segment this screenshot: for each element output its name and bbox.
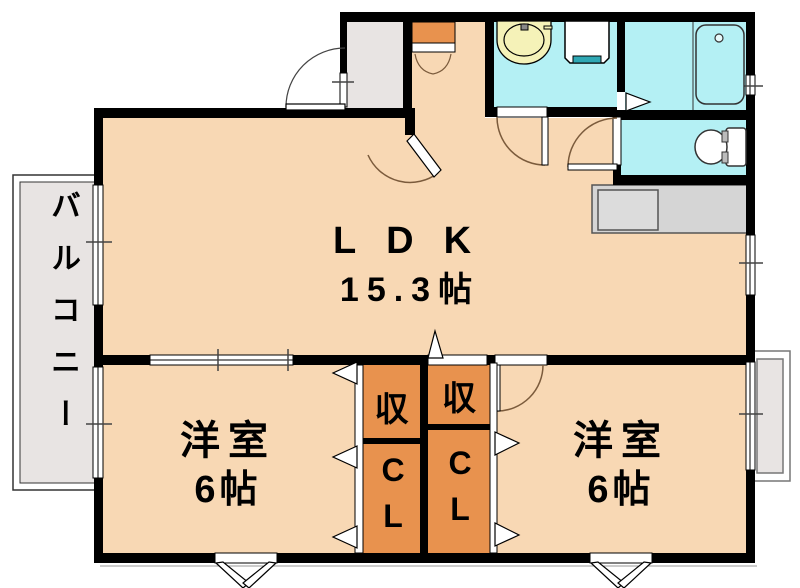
bedroom-right-area: 6帖 bbox=[541, 458, 701, 513]
closet-left-label: CL bbox=[374, 452, 411, 544]
bay-window-right bbox=[590, 553, 652, 588]
bathtub-icon bbox=[693, 22, 744, 110]
storage-right-label: 収 bbox=[428, 371, 490, 420]
floorplan-page: LDK 15.3帖 洋室 6帖 洋室 6帖 収 収 CL CL バルコニー bbox=[0, 0, 800, 588]
kitchen-counter bbox=[592, 185, 748, 233]
toilet-icon bbox=[695, 128, 746, 166]
balcony-label: バルコニー bbox=[40, 190, 84, 450]
window-box-right bbox=[752, 351, 790, 481]
ldk-room-area: 15.3帖 bbox=[290, 262, 530, 311]
bedroom-left-area: 6帖 bbox=[148, 458, 308, 513]
storage-left-label: 収 bbox=[363, 382, 420, 431]
bay-window-left bbox=[215, 553, 277, 588]
washing-machine-icon bbox=[565, 21, 609, 63]
entry-floor bbox=[347, 22, 403, 108]
shoe-cabinet bbox=[412, 22, 455, 43]
closet-right-label: CL bbox=[441, 445, 478, 537]
ldk-room-label: LDK bbox=[290, 220, 530, 263]
